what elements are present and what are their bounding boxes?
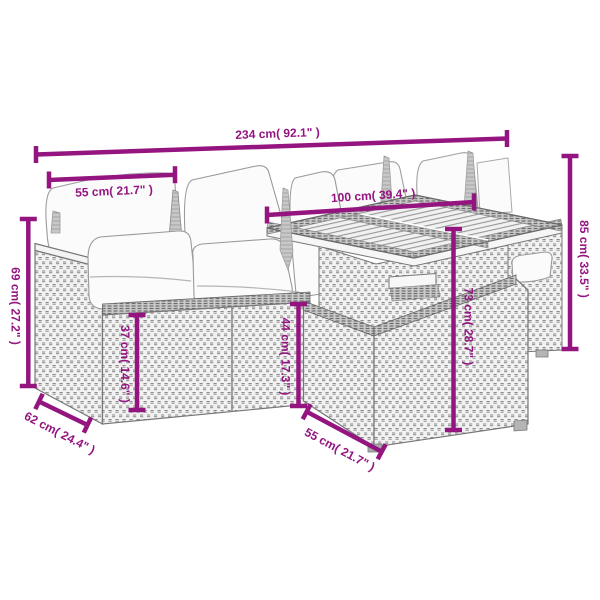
svg-text:234 cm( 92.1" ): 234 cm( 92.1" )	[235, 125, 320, 142]
svg-text:37 cm( 14.6" ): 37 cm( 14.6" )	[118, 325, 132, 403]
svg-text:85 cm( 33.5" ): 85 cm( 33.5" )	[577, 220, 591, 298]
svg-text:44 cm( 17.3" ): 44 cm( 17.3" )	[279, 318, 293, 396]
svg-text:73 cm( 28.7" ): 73 cm( 28.7" )	[462, 288, 476, 366]
svg-text:69 cm( 27.2" ): 69 cm( 27.2" )	[9, 267, 23, 345]
